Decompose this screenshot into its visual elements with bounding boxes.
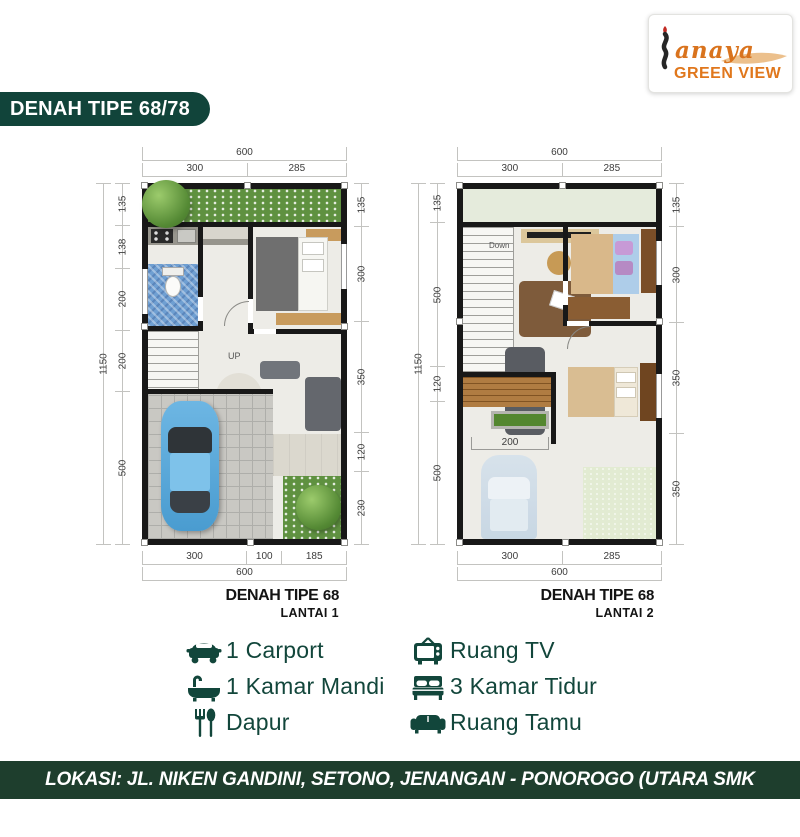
- window: [142, 269, 148, 314]
- pillow: [616, 387, 636, 398]
- column-marker: [456, 182, 463, 189]
- dim-top-segments: 300 285: [457, 163, 662, 177]
- logo-script-text: anaya: [675, 37, 755, 64]
- window: [656, 374, 662, 418]
- legend-right-column: Ruang TV 3 Kamar Tidur: [410, 634, 650, 739]
- tree: [142, 180, 190, 228]
- door-opening: [198, 297, 203, 321]
- staircase-up: [148, 331, 199, 389]
- page-title: DENAH TIPE 68/78: [0, 92, 210, 126]
- legend-item-ruang-tv: Ruang TV: [410, 634, 650, 667]
- plan-subtitle: LANTAI 1: [142, 606, 339, 620]
- dim-bottom-total: 600: [457, 567, 662, 581]
- location-text: LOKASI: JL. NIKEN GANDINI, SETONO, JENAN…: [0, 761, 800, 837]
- sofa-icon: [410, 708, 450, 738]
- bedroom-bench: [276, 313, 341, 325]
- pillow: [302, 259, 324, 272]
- roof-strip: [463, 189, 656, 222]
- back-lawn: [583, 467, 656, 539]
- column-marker: [244, 182, 251, 189]
- legend-item-carport: 1 Carport: [186, 634, 404, 667]
- tv-icon: [410, 636, 450, 666]
- dim-top-total: 600: [142, 147, 347, 161]
- logo-card: anaya GREEN VIEW: [648, 14, 793, 93]
- dim-top-total: 600: [457, 147, 662, 161]
- dim-bottom-segments: 300 100 185: [142, 551, 347, 565]
- dim-right-segments: 135 300 350 350: [669, 183, 684, 545]
- armchair: [260, 361, 300, 379]
- planter-box: [491, 411, 549, 429]
- car-roof: [170, 453, 210, 491]
- car-icon: [186, 636, 226, 666]
- car-rear-window: [170, 491, 210, 513]
- column-marker: [141, 182, 148, 189]
- column-marker: [656, 539, 663, 546]
- stairs-label: UP: [228, 351, 241, 361]
- plan-title: DENAH TIPE: [541, 587, 634, 604]
- bed2-blanket: [568, 367, 614, 417]
- column-marker: [341, 323, 348, 330]
- dim-deck-width: 200: [471, 437, 549, 450]
- door-swing-arc: [224, 301, 249, 326]
- counter-extension: [200, 227, 248, 239]
- legend-left-column: 1 Carport 1 Kamar Mandi Dapur: [186, 634, 404, 739]
- dim-top-segments: 300 285: [142, 163, 347, 177]
- legend-item-kamar-mandi: 1 Kamar Mandi: [186, 670, 404, 703]
- building-lantai-2: Down 200: [457, 183, 662, 545]
- bed-blanket: [256, 237, 298, 311]
- column-marker: [247, 539, 254, 546]
- stove: [151, 229, 173, 243]
- dim-left-total: 1150: [96, 183, 111, 545]
- wall: [551, 372, 556, 444]
- car: [161, 401, 219, 531]
- ghost-car: [481, 455, 537, 539]
- dim-bottom-total: 600: [142, 567, 347, 581]
- building-lantai-1: UP: [142, 183, 347, 545]
- column-marker: [341, 539, 348, 546]
- column-marker: [656, 318, 663, 325]
- wardrobe: [641, 229, 656, 293]
- toilet-bowl: [165, 276, 181, 297]
- window: [656, 241, 662, 285]
- column-marker: [559, 182, 566, 189]
- bush: [296, 485, 341, 530]
- dim-left-segments: 135 138 200 200 500: [115, 183, 130, 545]
- walk-path: [273, 434, 341, 476]
- column-marker: [562, 539, 569, 546]
- bed1-blanket: [571, 234, 613, 294]
- column-marker: [341, 182, 348, 189]
- car-windshield: [168, 427, 212, 453]
- dim-left-total: 1150: [411, 183, 426, 545]
- legend-item-dapur: Dapur: [186, 706, 404, 739]
- plan-title-number: 68: [638, 587, 654, 604]
- column-marker: [456, 539, 463, 546]
- bed-icon: [410, 672, 450, 702]
- ghost-car-windshield: [488, 477, 530, 499]
- plan-caption-1: DENAH TIPE 68 LANTAI 1: [142, 587, 339, 620]
- pillow: [302, 242, 324, 255]
- plan-subtitle: LANTAI 2: [457, 606, 654, 620]
- toilet-tank: [162, 267, 184, 276]
- legend-item-ruang-tamu: Ruang Tamu: [410, 706, 650, 739]
- window: [341, 244, 347, 289]
- column-marker: [656, 182, 663, 189]
- column-marker: [141, 539, 148, 546]
- headboard: [640, 363, 656, 421]
- wood-deck: [463, 377, 551, 407]
- flyer-page: { "logo": {"script": "anaya", "name": "G…: [0, 0, 800, 800]
- dresser: [568, 297, 630, 319]
- plan-title-number: 68: [323, 587, 339, 604]
- ghost-car-roof: [490, 499, 528, 531]
- pillow: [615, 241, 633, 255]
- sofa: [305, 377, 341, 431]
- plan-caption-2: DENAH TIPE 68 LANTAI 2: [457, 587, 654, 620]
- footer-banner: LOKASI: JL. NIKEN GANDINI, SETONO, JENAN…: [0, 761, 800, 799]
- floor-plan-lantai-2: 600 300 285 1150 135 500 120 500 135 300…: [403, 145, 713, 637]
- dim-left-segments: 135 500 120 500: [430, 183, 445, 545]
- door-opening: [254, 329, 276, 334]
- pillow: [615, 261, 633, 275]
- legend-item-kamar-tidur: 3 Kamar Tidur: [410, 670, 650, 703]
- dim-bottom-segments: 300 285: [457, 551, 662, 565]
- bathtub-icon: [186, 672, 226, 702]
- pillow: [616, 372, 636, 383]
- stairs-label: Down: [489, 241, 509, 250]
- floor-plan-lantai-1: 600 300 285 1150 135 138 200 200 500 135…: [88, 145, 398, 637]
- logo-brand-text: GREEN VIEW: [674, 65, 781, 83]
- utensils-icon: [186, 708, 226, 738]
- kitchen-sink: [177, 229, 196, 243]
- plan-title: DENAH TIPE: [226, 587, 319, 604]
- column-marker: [141, 323, 148, 330]
- dim-right-segments: 135 300 350 120 230: [354, 183, 369, 545]
- column-marker: [456, 318, 463, 325]
